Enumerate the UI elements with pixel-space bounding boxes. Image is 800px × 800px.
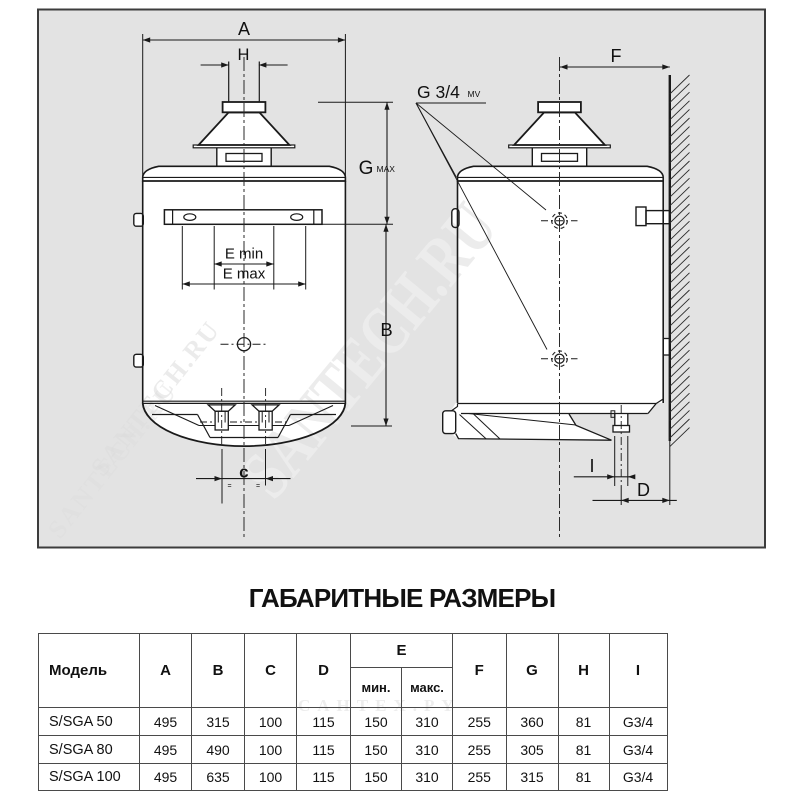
svg-text:H: H: [238, 46, 250, 64]
svg-text:E min: E min: [225, 246, 263, 263]
svg-text:=: =: [227, 483, 231, 490]
svg-text:I: I: [589, 456, 594, 476]
svg-text:c: c: [239, 463, 248, 482]
svg-text:F: F: [611, 46, 622, 66]
svg-text:D: D: [637, 480, 650, 500]
svg-text:MV: MV: [468, 89, 481, 99]
svg-text:MAX: MAX: [377, 164, 396, 174]
svg-text:=: =: [256, 483, 260, 490]
svg-text:E max: E max: [223, 266, 266, 283]
svg-text:A: A: [238, 19, 250, 39]
svg-text:G 3/4: G 3/4: [417, 82, 460, 102]
svg-text:G: G: [359, 158, 374, 179]
svg-text:B: B: [380, 319, 392, 340]
